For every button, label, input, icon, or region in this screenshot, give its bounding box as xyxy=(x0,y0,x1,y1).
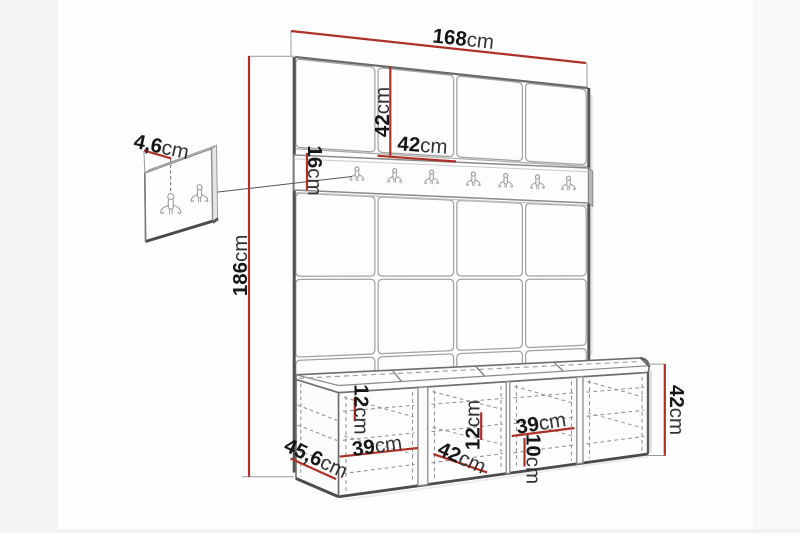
svg-text:12cm: 12cm xyxy=(350,384,373,434)
svg-text:12cm: 12cm xyxy=(461,400,484,450)
svg-text:42cm: 42cm xyxy=(666,385,689,435)
svg-text:10cm: 10cm xyxy=(522,434,545,484)
svg-text:186cm: 186cm xyxy=(229,235,252,297)
svg-text:16cm: 16cm xyxy=(303,145,326,195)
svg-text:42cm: 42cm xyxy=(397,132,449,158)
svg-text:42cm: 42cm xyxy=(371,87,394,137)
